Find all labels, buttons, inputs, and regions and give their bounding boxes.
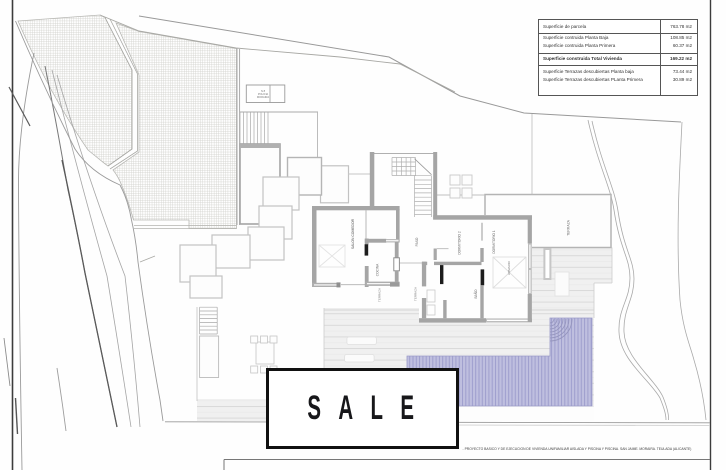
svg-text:TERRAZA: TERRAZA (414, 287, 418, 301)
svg-text:BAÑO: BAÑO (473, 289, 478, 299)
svg-text:DORMITORIO 1: DORMITORIO 1 (492, 230, 496, 254)
svg-text:TERRAZA: TERRAZA (567, 219, 571, 236)
svg-text:TERRAZA: TERRAZA (378, 288, 382, 302)
svg-text:ARMARIO: ARMARIO (507, 260, 511, 275)
svg-text:SALON COMEDOR: SALON COMEDOR (351, 218, 355, 249)
svg-text:COCINA: COCINA (376, 263, 380, 276)
svg-text:DORMITORIO 2: DORMITORIO 2 (458, 231, 462, 255)
svg-text:PASO: PASO (415, 237, 419, 246)
